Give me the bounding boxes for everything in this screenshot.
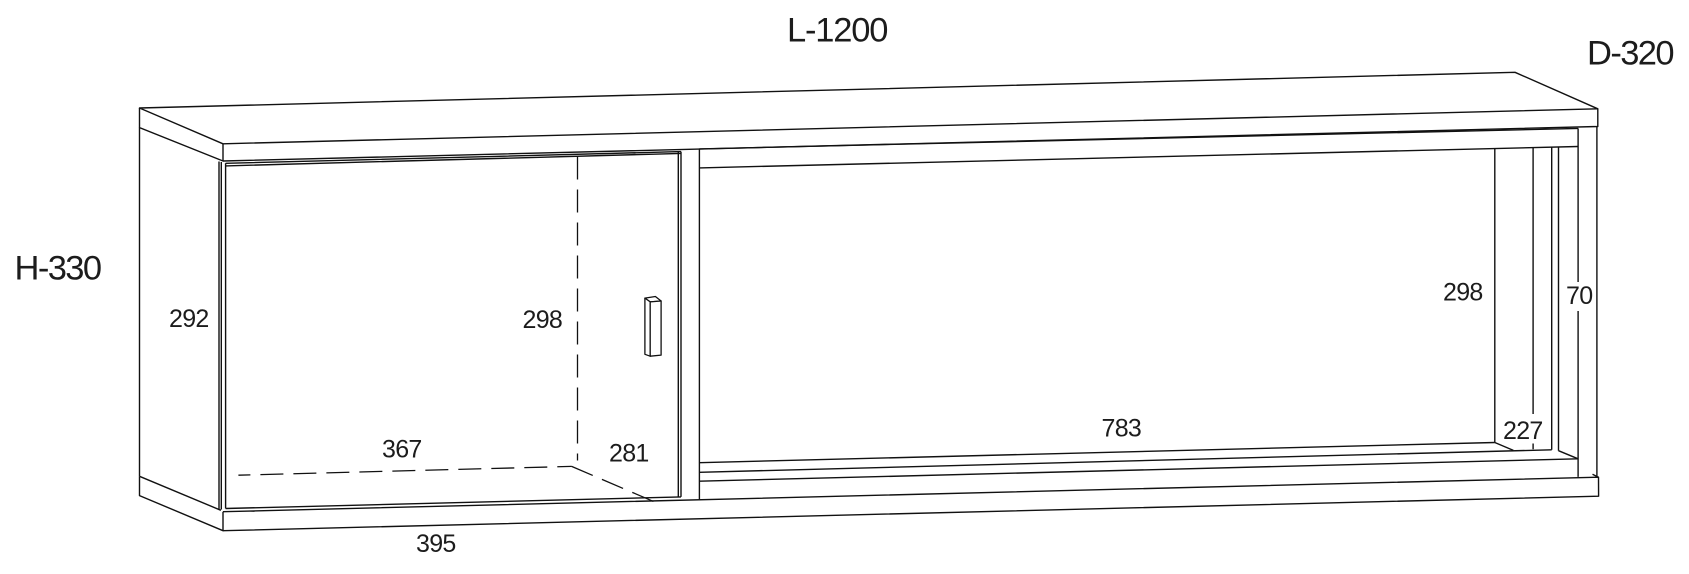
svg-text:292: 292: [169, 305, 209, 333]
svg-text:367: 367: [382, 436, 422, 464]
svg-text:281: 281: [609, 440, 649, 468]
svg-text:298: 298: [523, 306, 563, 334]
svg-text:227: 227: [1503, 417, 1543, 445]
svg-text:298: 298: [1443, 279, 1483, 307]
svg-text:H-330: H-330: [15, 250, 101, 288]
svg-text:70: 70: [1566, 282, 1592, 310]
svg-text:783: 783: [1102, 415, 1142, 443]
svg-text:L-1200: L-1200: [787, 11, 887, 49]
svg-text:395: 395: [416, 530, 456, 558]
svg-text:D-320: D-320: [1587, 35, 1673, 73]
